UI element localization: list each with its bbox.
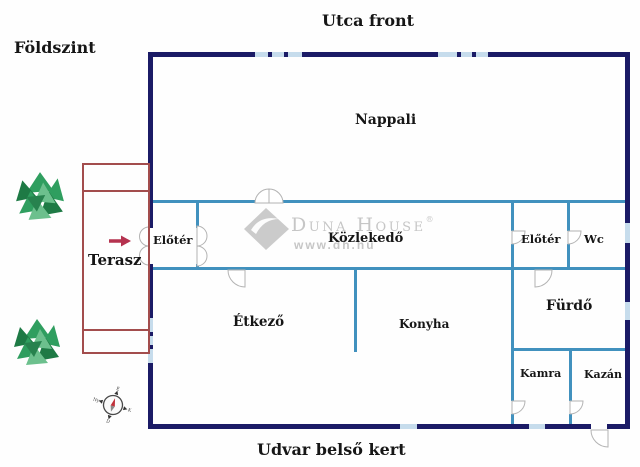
door-garden-exit-icon bbox=[589, 423, 610, 448]
compass-east-label: K bbox=[127, 407, 133, 414]
window-furdo bbox=[625, 302, 630, 320]
wall-corridor-bottom bbox=[153, 267, 625, 270]
room-label-wc: Wc bbox=[584, 232, 604, 246]
floor-label: Földszint bbox=[14, 38, 96, 57]
window-konyha bbox=[400, 424, 417, 429]
floor-plan-canvas: Duna House® www.dh.hu bbox=[0, 0, 640, 467]
window-dash bbox=[268, 52, 272, 57]
terrace-entry-arrow-icon bbox=[106, 234, 132, 248]
door-etkezo-icon bbox=[227, 269, 247, 289]
dunahouse-diamond-logo-icon bbox=[243, 207, 290, 251]
window-nappali-right bbox=[438, 52, 488, 57]
tree-icon bbox=[14, 170, 66, 222]
room-label-kozlekedo: Közlekedő bbox=[328, 231, 403, 246]
room-label-eloter1: Előtér bbox=[153, 233, 193, 247]
wall-corridor-top bbox=[153, 200, 625, 203]
tree-icon bbox=[12, 317, 62, 367]
wall-etkezo-konyha-divider bbox=[354, 270, 357, 352]
room-label-eloter2: Előtér bbox=[521, 232, 561, 246]
window-nappali-left bbox=[255, 52, 302, 57]
wall-exterior-top bbox=[148, 52, 630, 57]
wall-exterior-bottom bbox=[148, 424, 630, 429]
window-dash bbox=[457, 52, 461, 57]
door-kazan-icon bbox=[568, 399, 585, 416]
window-wc bbox=[625, 223, 630, 243]
door-wc-icon bbox=[566, 229, 583, 246]
room-label-kazan: Kazán bbox=[584, 368, 622, 381]
room-label-etkezo: Étkező bbox=[233, 314, 284, 330]
compass-north-label: É bbox=[115, 384, 120, 393]
room-label-furdo: Fürdő bbox=[546, 298, 592, 314]
room-label-konyha: Konyha bbox=[399, 317, 449, 331]
door-eloter1-icon bbox=[193, 224, 212, 268]
door-kamra-icon bbox=[510, 399, 527, 416]
door-furdo-icon bbox=[533, 269, 553, 289]
compass-south-label: D bbox=[105, 418, 111, 425]
room-label-kamra: Kamra bbox=[520, 367, 561, 380]
room-label-terasz: Terasz bbox=[88, 251, 142, 269]
window-dash bbox=[284, 52, 288, 57]
watermark-registered-mark: ® bbox=[426, 215, 434, 224]
street-front-label: Utca front bbox=[322, 11, 414, 30]
compass-icon: É K D Ny bbox=[94, 386, 132, 424]
terrace-step-top bbox=[82, 190, 148, 192]
double-door-nappali-icon bbox=[253, 184, 285, 204]
window-dash bbox=[472, 52, 476, 57]
window-kamra bbox=[529, 424, 545, 429]
room-label-nappali: Nappali bbox=[355, 112, 416, 128]
terrace-step-bottom bbox=[82, 329, 148, 331]
compass-west-label: Ny bbox=[92, 397, 100, 405]
garden-label: Udvar belső kert bbox=[257, 440, 406, 459]
